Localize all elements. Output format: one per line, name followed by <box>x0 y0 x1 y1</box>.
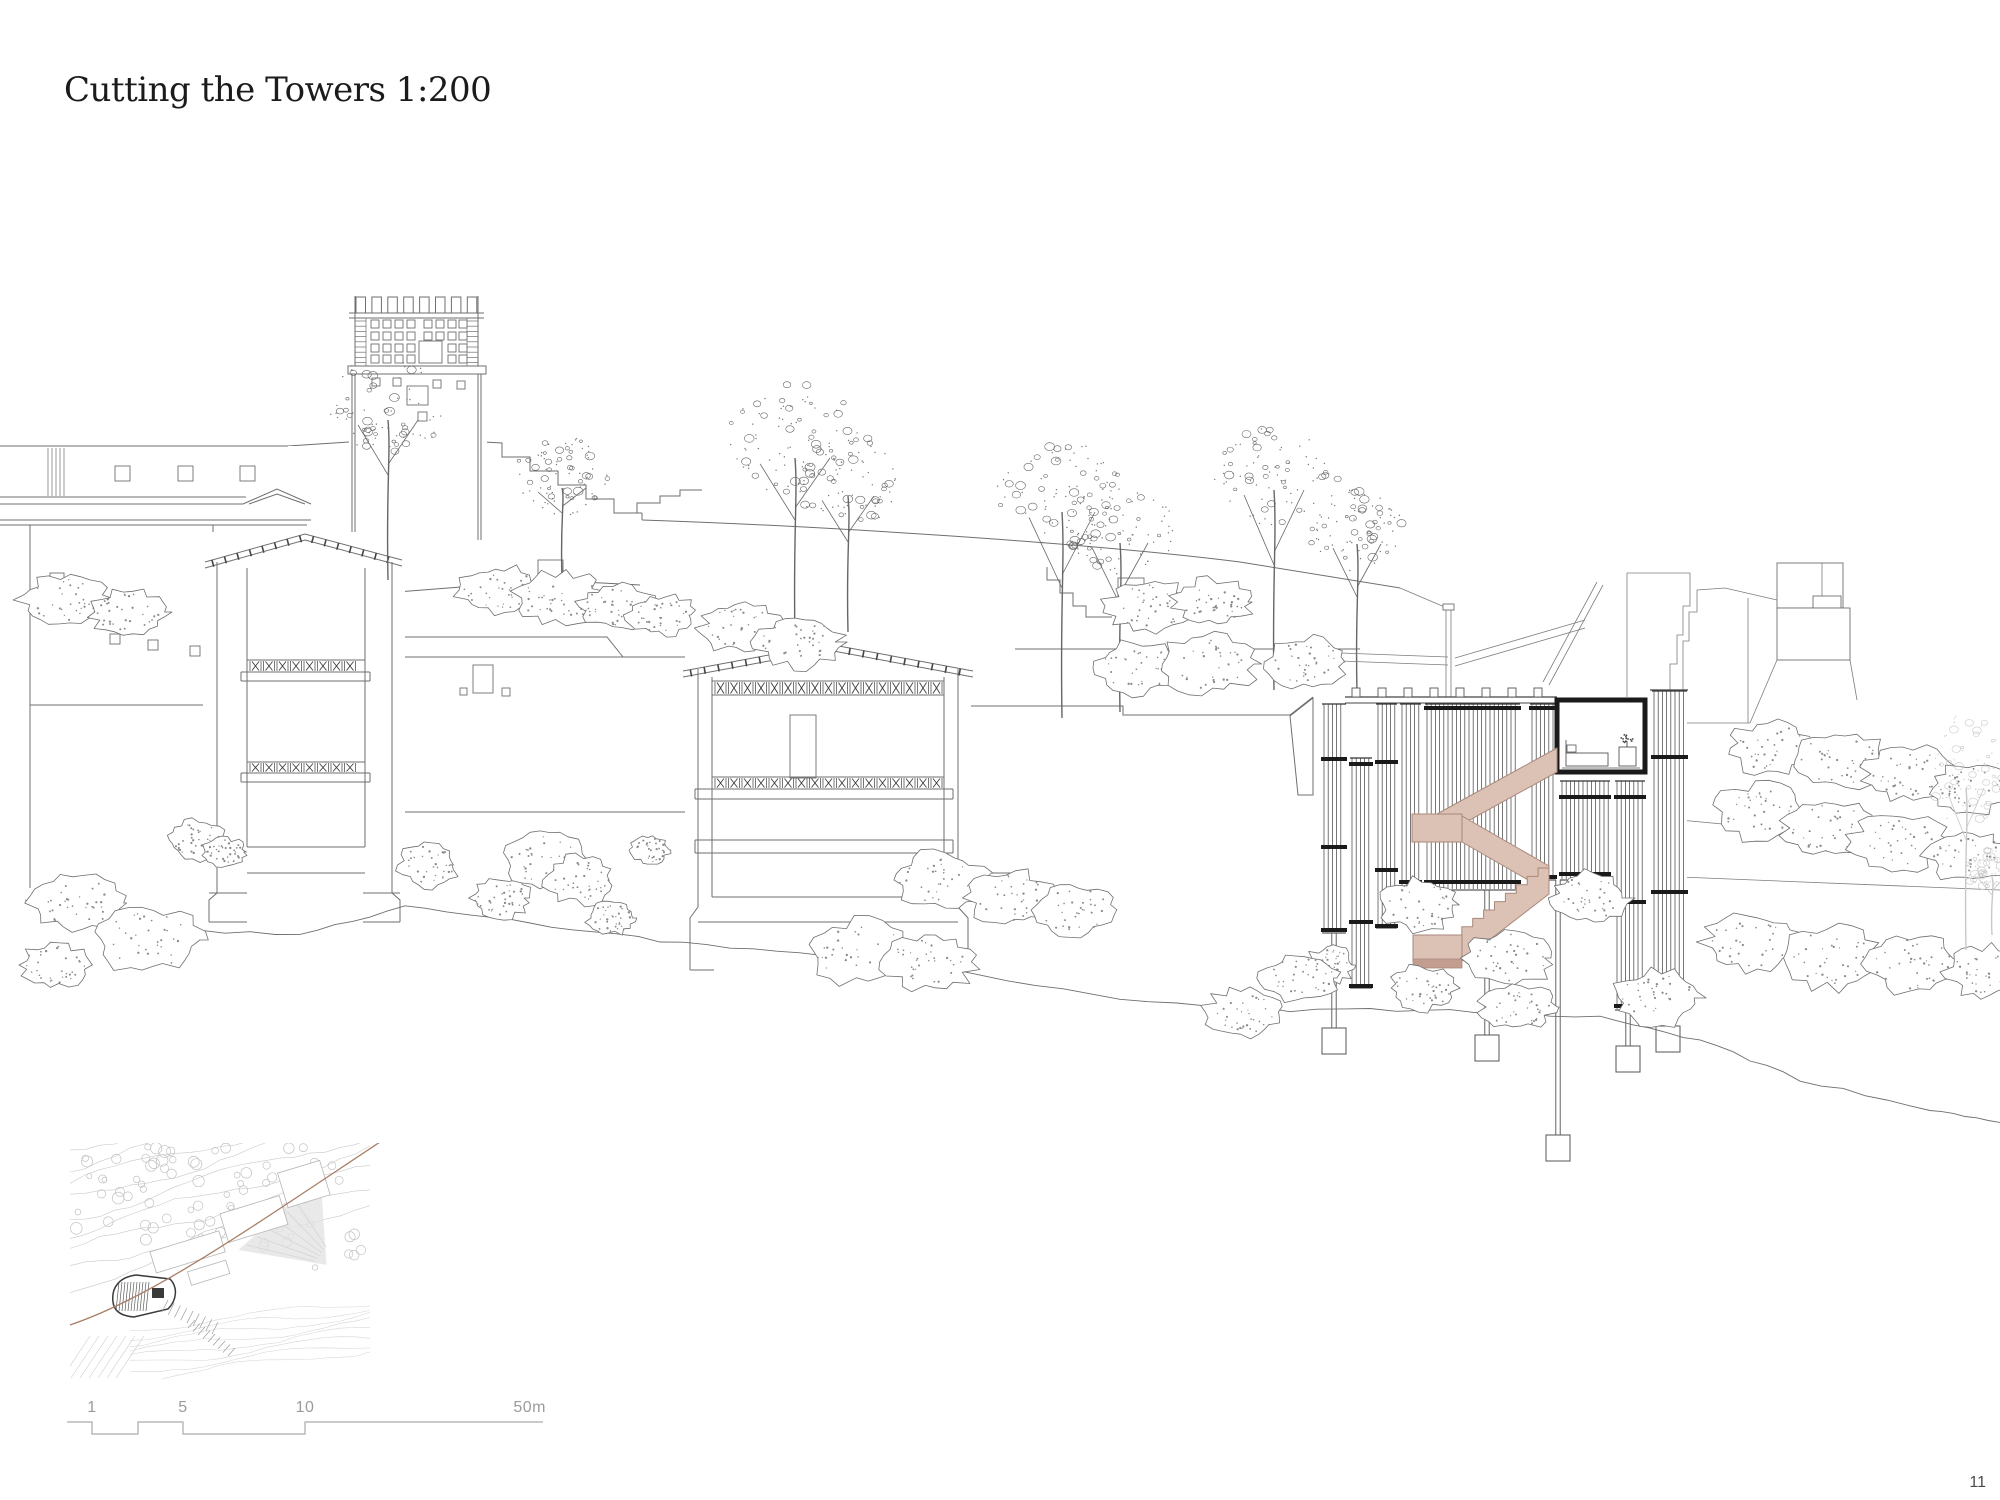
site-plan-thumbnail <box>60 1071 380 1381</box>
presentation-sheet: Cutting the Towers 1:200 <box>0 0 2000 1500</box>
page-number: 11 <box>1969 1474 1986 1492</box>
scale-label-10: 10 <box>296 1399 315 1416</box>
section-drawing: 1 5 10 50m <box>0 0 2000 1500</box>
scale-bar: 1 5 10 50m <box>67 1399 546 1434</box>
cabin-room-section <box>1557 700 1645 772</box>
ground-line <box>25 900 2000 1122</box>
new-tower-intervention <box>1290 582 1688 1161</box>
scale-label-50m: 50m <box>513 1399 546 1416</box>
scale-label-5: 5 <box>178 1399 187 1416</box>
castle-tower-elevation <box>348 294 487 544</box>
scale-bar-line <box>67 1422 543 1434</box>
scale-label-1: 1 <box>87 1399 96 1416</box>
left-tower-section <box>203 532 405 927</box>
